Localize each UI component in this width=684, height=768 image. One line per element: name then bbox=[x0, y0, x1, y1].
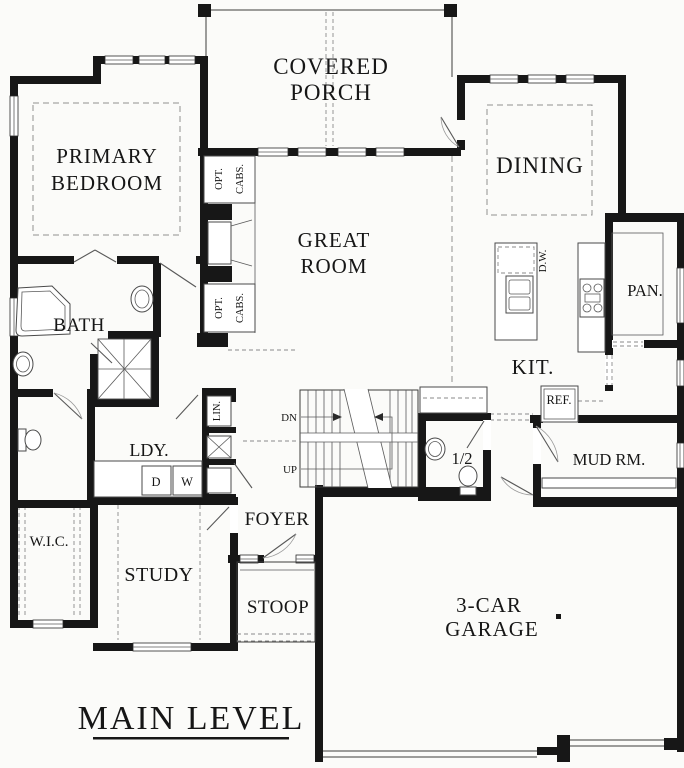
dryer-label: D bbox=[151, 475, 160, 489]
stoop-label: STOOP bbox=[247, 597, 309, 618]
garage-label: GARAGE bbox=[445, 617, 539, 641]
window bbox=[490, 75, 518, 83]
optional-cabinets-lower bbox=[204, 284, 255, 332]
window bbox=[10, 96, 18, 136]
south-counter bbox=[420, 387, 487, 413]
garage-door bbox=[323, 751, 537, 757]
floor-plan: COVERED PORCH PRIMARY BEDROOM DINING GRE… bbox=[0, 0, 684, 768]
window bbox=[528, 75, 556, 83]
wic-label: W.I.C. bbox=[29, 534, 68, 550]
window bbox=[677, 443, 684, 468]
primary-bedroom-label: PRIMARY bbox=[56, 144, 158, 168]
half-bath-label: 1/2 bbox=[451, 449, 472, 468]
washer-label: W bbox=[181, 475, 193, 489]
foyer-closet bbox=[207, 468, 231, 493]
island-sink-icon bbox=[506, 276, 533, 313]
bath-label: BATH bbox=[53, 315, 105, 336]
refrigerator-label: REF. bbox=[546, 393, 571, 407]
staircase bbox=[300, 389, 418, 488]
mud-room-label: MUD RM. bbox=[573, 450, 645, 469]
window bbox=[169, 56, 195, 64]
plan-title: MAIN LEVEL bbox=[78, 700, 305, 740]
dining-label: DINING bbox=[496, 153, 584, 178]
toilet-icon bbox=[18, 429, 41, 451]
title-underline bbox=[93, 737, 289, 740]
down-arrow-icon bbox=[333, 413, 342, 421]
stair-up-label: UP bbox=[283, 464, 297, 476]
great-room-label: ROOM bbox=[300, 254, 367, 278]
laundry-label: LDY. bbox=[129, 440, 168, 460]
pantry-label: PAN. bbox=[627, 281, 663, 300]
kitchen-label: KIT. bbox=[512, 355, 555, 379]
sink-icon bbox=[13, 352, 33, 376]
window bbox=[298, 148, 326, 156]
door-icon bbox=[176, 395, 198, 419]
garage-label: 3-CAR bbox=[456, 593, 522, 617]
window bbox=[376, 148, 404, 156]
covered-porch-label: PORCH bbox=[290, 80, 372, 105]
double-door-icon bbox=[74, 250, 116, 262]
study-label: STUDY bbox=[124, 564, 193, 586]
opt-cabs-label: OPT. bbox=[214, 168, 225, 190]
door-icon bbox=[54, 393, 82, 419]
garage-door bbox=[570, 740, 664, 746]
floor-plan-page: COVERED PORCH PRIMARY BEDROOM DINING GRE… bbox=[0, 0, 684, 768]
optional-cabinets-upper bbox=[204, 156, 255, 203]
door-icon bbox=[160, 263, 196, 287]
door-icon bbox=[501, 477, 533, 495]
window bbox=[677, 268, 684, 323]
main-level-title: MAIN LEVEL bbox=[78, 700, 305, 737]
door-icon bbox=[441, 117, 459, 147]
opt-cabs-label: OPT. bbox=[214, 297, 225, 319]
window bbox=[139, 56, 165, 64]
primary-bedroom-label: BEDROOM bbox=[51, 171, 163, 195]
dishwasher-label: D.W. bbox=[537, 249, 549, 272]
front-door-icon bbox=[263, 534, 296, 558]
linen-label: LIN. bbox=[212, 401, 223, 421]
window bbox=[105, 56, 133, 64]
window bbox=[338, 148, 366, 156]
toilet-icon bbox=[459, 466, 477, 495]
opt-cabs-label: CABS. bbox=[235, 293, 246, 323]
chase-box bbox=[207, 436, 231, 458]
foyer-label: FOYER bbox=[245, 509, 310, 530]
door-icon bbox=[467, 421, 484, 448]
sink-icon bbox=[425, 438, 445, 460]
window bbox=[677, 360, 684, 386]
mud-room-bench bbox=[542, 478, 676, 488]
shower-icon bbox=[98, 339, 151, 399]
cooktop-icon bbox=[580, 279, 604, 317]
window bbox=[258, 148, 288, 156]
window bbox=[566, 75, 594, 83]
covered-porch-label: COVERED bbox=[273, 54, 389, 79]
window bbox=[33, 620, 63, 628]
opt-cabs-label: CABS. bbox=[235, 164, 246, 194]
window bbox=[133, 643, 191, 651]
sink-icon bbox=[131, 286, 153, 312]
door-icon bbox=[234, 463, 252, 488]
great-room-label: GREAT bbox=[298, 228, 371, 252]
door-icon bbox=[207, 507, 229, 530]
stair-down-label: DN bbox=[281, 412, 297, 424]
